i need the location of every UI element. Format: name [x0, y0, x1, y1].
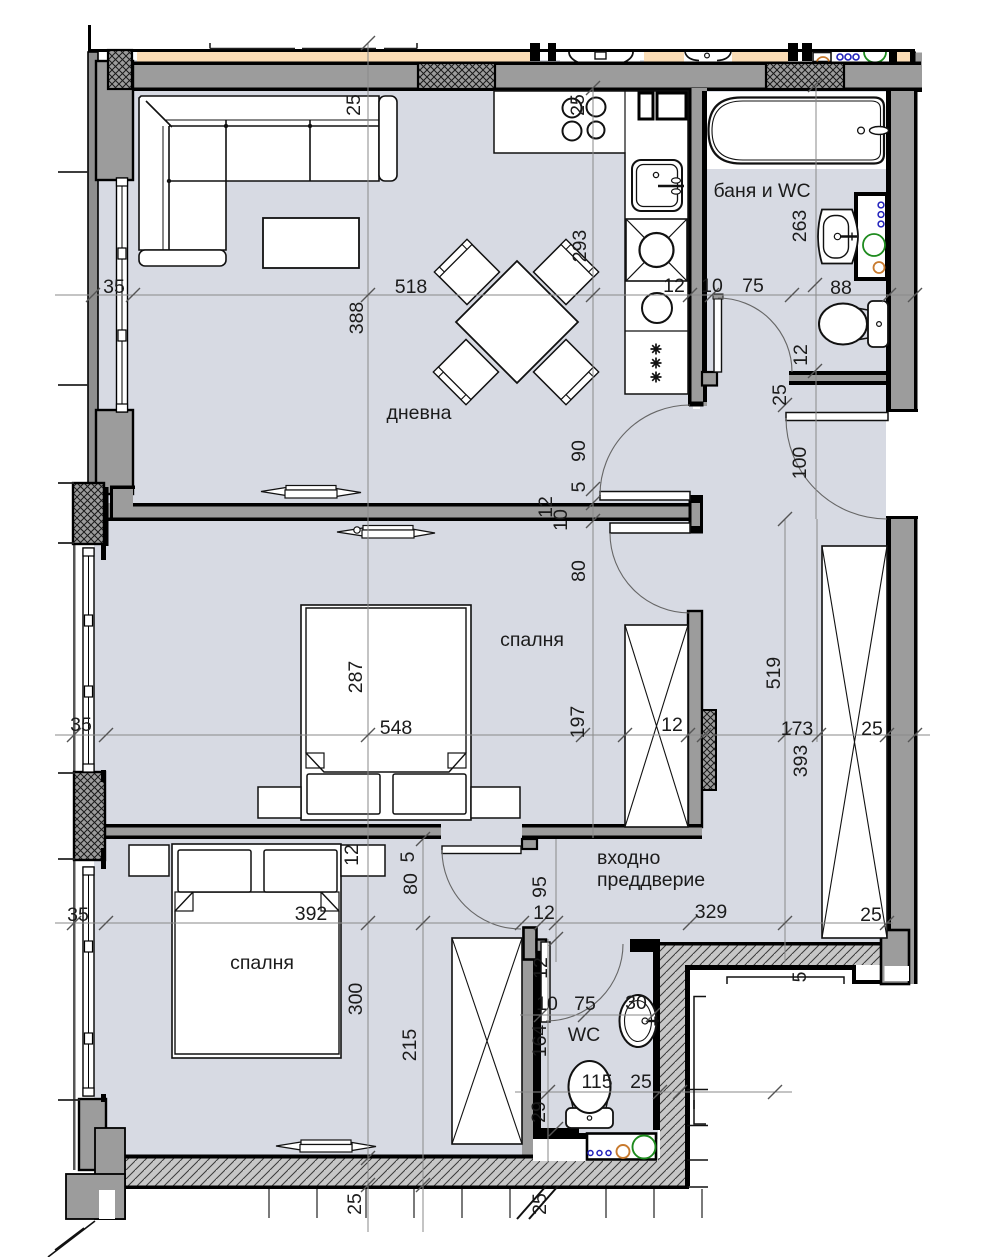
svg-text:518: 518: [395, 276, 428, 298]
svg-text:спалня: спалня: [500, 629, 564, 651]
svg-text:287: 287: [345, 661, 367, 694]
svg-text:преддверие: преддверие: [597, 869, 705, 891]
svg-text:393: 393: [790, 745, 812, 778]
svg-text:263: 263: [789, 210, 811, 243]
svg-text:25: 25: [344, 1193, 366, 1215]
svg-text:12: 12: [661, 714, 683, 736]
svg-text:10: 10: [536, 993, 558, 1015]
svg-text:115: 115: [581, 1071, 612, 1093]
svg-text:329: 329: [695, 901, 728, 923]
svg-text:30: 30: [625, 992, 647, 1014]
svg-text:197: 197: [567, 706, 589, 739]
svg-text:548: 548: [380, 717, 413, 739]
svg-text:392: 392: [295, 903, 328, 925]
svg-text:25: 25: [567, 94, 589, 116]
svg-text:80: 80: [400, 873, 422, 895]
svg-text:519: 519: [763, 657, 785, 690]
svg-text:95: 95: [529, 876, 551, 898]
svg-text:35: 35: [103, 276, 125, 298]
svg-text:12: 12: [341, 844, 363, 866]
svg-text:75: 75: [574, 993, 596, 1015]
svg-text:90: 90: [568, 440, 590, 462]
svg-text:5: 5: [568, 481, 590, 492]
svg-text:164: 164: [529, 1025, 551, 1058]
svg-text:25: 25: [343, 94, 365, 116]
svg-text:баня и WC: баня и WC: [713, 180, 810, 202]
svg-text:дневна: дневна: [387, 402, 452, 424]
svg-text:173: 173: [781, 718, 814, 740]
svg-text:215: 215: [399, 1029, 421, 1062]
svg-text:WC: WC: [568, 1024, 601, 1046]
svg-text:25: 25: [769, 384, 791, 406]
svg-text:5: 5: [397, 851, 419, 862]
svg-text:входно: входно: [597, 847, 660, 869]
svg-text:12: 12: [663, 275, 685, 297]
svg-text:35: 35: [70, 714, 92, 736]
svg-text:спалня: спалня: [230, 952, 294, 974]
svg-text:12: 12: [533, 902, 555, 924]
svg-text:10: 10: [701, 275, 723, 297]
svg-text:29: 29: [528, 1101, 550, 1123]
svg-text:12: 12: [790, 344, 812, 366]
svg-text:300: 300: [345, 983, 367, 1016]
svg-text:35: 35: [67, 904, 89, 926]
svg-text:100: 100: [789, 447, 811, 480]
svg-text:293: 293: [569, 230, 591, 263]
svg-text:12: 12: [535, 496, 557, 518]
svg-text:12: 12: [530, 957, 552, 979]
svg-text:88: 88: [830, 277, 852, 299]
svg-text:388: 388: [346, 302, 368, 335]
svg-text:80: 80: [568, 560, 590, 582]
svg-text:25: 25: [861, 718, 883, 740]
svg-text:75: 75: [742, 275, 764, 297]
svg-text:25: 25: [630, 1071, 652, 1093]
svg-text:25: 25: [860, 904, 882, 926]
